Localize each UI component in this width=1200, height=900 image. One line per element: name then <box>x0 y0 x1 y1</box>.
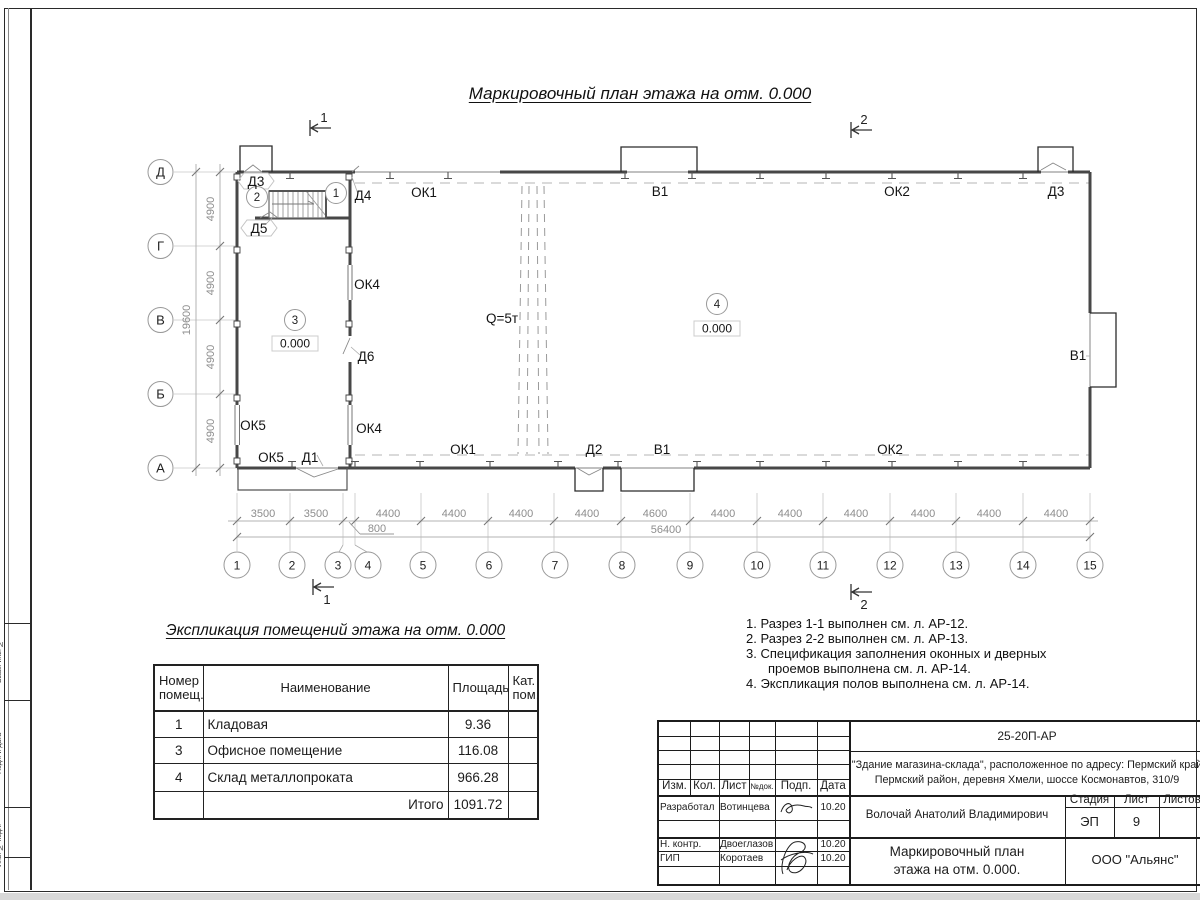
section-number: 2 <box>860 597 867 612</box>
tb-project: "Здание магазина-склада", расположенное … <box>851 753 1200 793</box>
room-cat <box>508 711 538 737</box>
window-label-ok5-bot: ОК5 <box>258 450 284 465</box>
crane-rail-dashed-lines <box>518 186 548 454</box>
dim-value: 4400 <box>1044 508 1068 520</box>
title-block: Изм. Кол. Лист №док. Подп. Дата Разработ… <box>657 720 1200 886</box>
empty-cell <box>154 791 203 819</box>
column-number: 9 <box>687 559 694 573</box>
dim-value: 3500 <box>251 508 275 520</box>
crane-capacity-label: Q=5т <box>486 311 518 326</box>
tb-line <box>659 820 849 821</box>
tb-stage-label: Стадия <box>1065 795 1114 807</box>
dim-value: 4400 <box>977 508 1001 520</box>
column-circle-leaders <box>339 545 367 552</box>
gate-canopy-right <box>1090 313 1116 387</box>
window-label-ok1-bot: ОК1 <box>450 442 476 457</box>
tb-col-kol: Кол. <box>690 779 719 795</box>
tb-project-line1: "Здание магазина-склада", расположенное … <box>852 758 1200 773</box>
column-number: 12 <box>883 559 897 573</box>
tb-drawing-title-line1: Маркировочный план <box>890 843 1025 861</box>
room-num: 4 <box>154 763 203 791</box>
table-header-row: Номер помещ. Наименование Площадь Кат. п… <box>154 665 538 711</box>
header-area: Площадь <box>448 665 508 711</box>
dim-value: 4400 <box>711 508 735 520</box>
tb-col-list: Лист <box>719 779 749 795</box>
room-number: 1 <box>333 188 339 200</box>
floor-plan: 3500 3500 800 4400 4400 4400 4400 4600 4… <box>0 0 1200 620</box>
tb-stage-value: ЭП <box>1065 807 1114 837</box>
tb-company: ООО "Альянс" <box>1065 837 1200 884</box>
signature-votintseva <box>777 798 815 818</box>
window-label-ok5-left: ОК5 <box>240 418 266 433</box>
dim-value: 4400 <box>509 508 533 520</box>
total-value: 1091.72 <box>448 791 508 819</box>
tb-line <box>849 751 1200 752</box>
window-label-ok2-top: ОК2 <box>884 184 910 199</box>
axis-letter: Г <box>157 239 164 254</box>
drawing-sheet: Взам. инв. № Подп. и дата Инв. № подл. М… <box>0 0 1200 900</box>
tb-name: Двоеглазов <box>720 838 774 851</box>
note-item: 3. Спецификация заполнения оконных и две… <box>746 647 1058 676</box>
room-num: 1 <box>154 711 203 737</box>
dim-value: 4900 <box>205 197 217 221</box>
column-number: 8 <box>619 559 626 573</box>
tb-date: 10.20 <box>817 798 849 818</box>
room-num: 3 <box>154 737 203 763</box>
note-item: 2. Разрез 2-2 выполнен см. л. АР-13. <box>746 632 1058 647</box>
tb-drawing-title: Маркировочный план этажа на отм. 0.000. <box>849 837 1065 884</box>
frame-label-vzam: Взам. инв. № <box>0 624 9 699</box>
tb-line <box>659 764 849 765</box>
room-name: Офисное помещение <box>203 737 448 763</box>
dim-total-left: 19600 <box>181 305 193 336</box>
door-label-d1: Д1 <box>302 450 319 465</box>
gate-label-v1-right: В1 <box>1070 348 1087 363</box>
tb-role: Разработал <box>660 798 718 818</box>
room-name: Склад металлопроката <box>203 763 448 791</box>
room-area: 116.08 <box>448 737 508 763</box>
room-cat <box>508 763 538 791</box>
column-number: 14 <box>1016 559 1030 573</box>
axis-letter: Б <box>156 387 165 402</box>
room-number: 4 <box>714 299 721 311</box>
column-number: 5 <box>420 559 427 573</box>
scan-edge <box>0 893 1200 900</box>
header-num: Номер помещ. <box>154 665 203 711</box>
door-label-d2: Д2 <box>586 442 603 457</box>
column-number: 2 <box>289 559 296 573</box>
dim-value-800: 800 <box>368 523 386 535</box>
dim-value: 4900 <box>205 419 217 443</box>
door-label-d4: Д4 <box>355 188 372 203</box>
section-number: 2 <box>860 112 867 127</box>
room-number: 3 <box>292 315 298 327</box>
frame-label-podp: Подп. и дата <box>0 701 9 806</box>
dim-total-bottom: 56400 <box>651 524 682 536</box>
door-label-d6: Д6 <box>358 349 375 364</box>
gate-canopy-bottom <box>621 468 694 491</box>
column-number: 13 <box>949 559 963 573</box>
tb-drawing-title-line2: этажа на отм. 0.000. <box>894 861 1021 879</box>
explication-title: Экспликация помещений этажа на отм. 0.00… <box>148 622 523 640</box>
explication-table: Номер помещ. Наименование Площадь Кат. п… <box>153 664 539 820</box>
tb-project-line2: Пермский район, деревня Хмели, шоссе Кос… <box>875 773 1179 788</box>
column-number: 1 <box>234 559 241 573</box>
dim-value: 3500 <box>304 508 328 520</box>
column-extension-lines <box>237 493 1090 551</box>
tb-col-data: Дата <box>817 779 849 795</box>
signature-gip <box>775 834 817 882</box>
tb-name: Вотинцева <box>720 798 774 818</box>
room-cat <box>508 737 538 763</box>
column-number: 11 <box>817 559 830 573</box>
dim-value: 4400 <box>442 508 466 520</box>
room-area: 9.36 <box>448 711 508 737</box>
dim-value: 4400 <box>575 508 599 520</box>
elevation-value: 0.000 <box>702 322 732 336</box>
header-name: Наименование <box>203 665 448 711</box>
tb-line <box>659 866 849 867</box>
label-leaders <box>266 177 1090 466</box>
elevation-value: 0.000 <box>280 337 310 351</box>
tb-sheets-value <box>1159 807 1200 837</box>
tb-col-ndok: №док. <box>749 779 775 795</box>
tb-name: Коротаев <box>720 852 774 865</box>
column-number: 15 <box>1083 559 1097 573</box>
table-row: 3 Офисное помещение 116.08 <box>154 737 538 763</box>
column-number: 6 <box>486 559 493 573</box>
table-row: 4 Склад металлопроката 966.28 <box>154 763 538 791</box>
column-number: 4 <box>365 559 372 573</box>
tb-chief-name: Волочай Анатолий Владимирович <box>849 795 1065 837</box>
porch-d2 <box>575 468 603 491</box>
note-item: 4. Экспликация полов выполнена см. л. АР… <box>746 677 1058 692</box>
room-name: Кладовая <box>203 711 448 737</box>
section-number: 1 <box>323 592 330 607</box>
tb-line <box>659 750 849 751</box>
tb-line <box>659 736 849 737</box>
tb-col-podp: Подп. <box>775 779 817 795</box>
header-cat: Кат. пом. <box>508 665 538 711</box>
door-label-d3-tr: Д3 <box>1048 184 1065 199</box>
door-label-d5: Д5 <box>251 221 268 236</box>
room-area: 966.28 <box>448 763 508 791</box>
dim-value: 4600 <box>643 508 667 520</box>
dim-value: 4900 <box>205 345 217 369</box>
notes-list: 1. Разрез 1-1 выполнен см. л. АР-12. 2. … <box>746 617 1058 692</box>
section-number: 1 <box>320 110 327 125</box>
window-label-ok4-bot: ОК4 <box>356 421 382 436</box>
gate-label-v1-top: В1 <box>652 184 669 199</box>
vestibule-top-left <box>240 146 272 172</box>
window-label-ok4-top: ОК4 <box>354 277 380 292</box>
tb-doc-number: 25-20П-АР <box>849 722 1200 751</box>
tb-sheet-value: 9 <box>1114 807 1159 837</box>
tb-sheets-label: Листов <box>1159 795 1200 807</box>
column-number: 3 <box>335 559 342 573</box>
axis-letter: В <box>156 313 165 328</box>
column-number: 7 <box>552 559 559 573</box>
column-number: 10 <box>750 559 764 573</box>
total-label: Итого <box>203 791 448 819</box>
tb-date: 10.20 <box>817 838 849 851</box>
table-row: 1 Кладовая 9.36 <box>154 711 538 737</box>
frame-label-inv: Инв. № подл. <box>0 808 9 882</box>
dim-value: 4900 <box>205 271 217 295</box>
dim-value: 4400 <box>376 508 400 520</box>
axis-letter: А <box>156 461 165 476</box>
window-label-ok2-bot: ОК2 <box>877 442 903 457</box>
tb-role: ГИП <box>660 852 718 865</box>
dim-value: 4400 <box>911 508 935 520</box>
dim-value: 4400 <box>844 508 868 520</box>
tb-role: Н. контр. <box>660 838 718 851</box>
door-label-d3-tl: Д3 <box>248 174 265 189</box>
empty-cell <box>508 791 538 819</box>
room-number: 2 <box>254 192 260 204</box>
stair-flight <box>269 191 326 218</box>
table-total-row: Итого 1091.72 <box>154 791 538 819</box>
tb-col-izm: Изм. <box>659 779 690 795</box>
glazing-dashed-lines <box>355 183 1090 455</box>
gate-canopy-top <box>621 147 697 172</box>
gate-label-v1-bot: В1 <box>654 442 671 457</box>
note-item: 1. Разрез 1-1 выполнен см. л. АР-12. <box>746 617 1058 632</box>
window-label-ok1-top: ОК1 <box>411 185 437 200</box>
dim-value: 4400 <box>778 508 802 520</box>
axis-letter: Д <box>156 165 165 180</box>
tb-sheet-label: Лист <box>1114 795 1159 807</box>
tb-date: 10.20 <box>817 852 849 865</box>
